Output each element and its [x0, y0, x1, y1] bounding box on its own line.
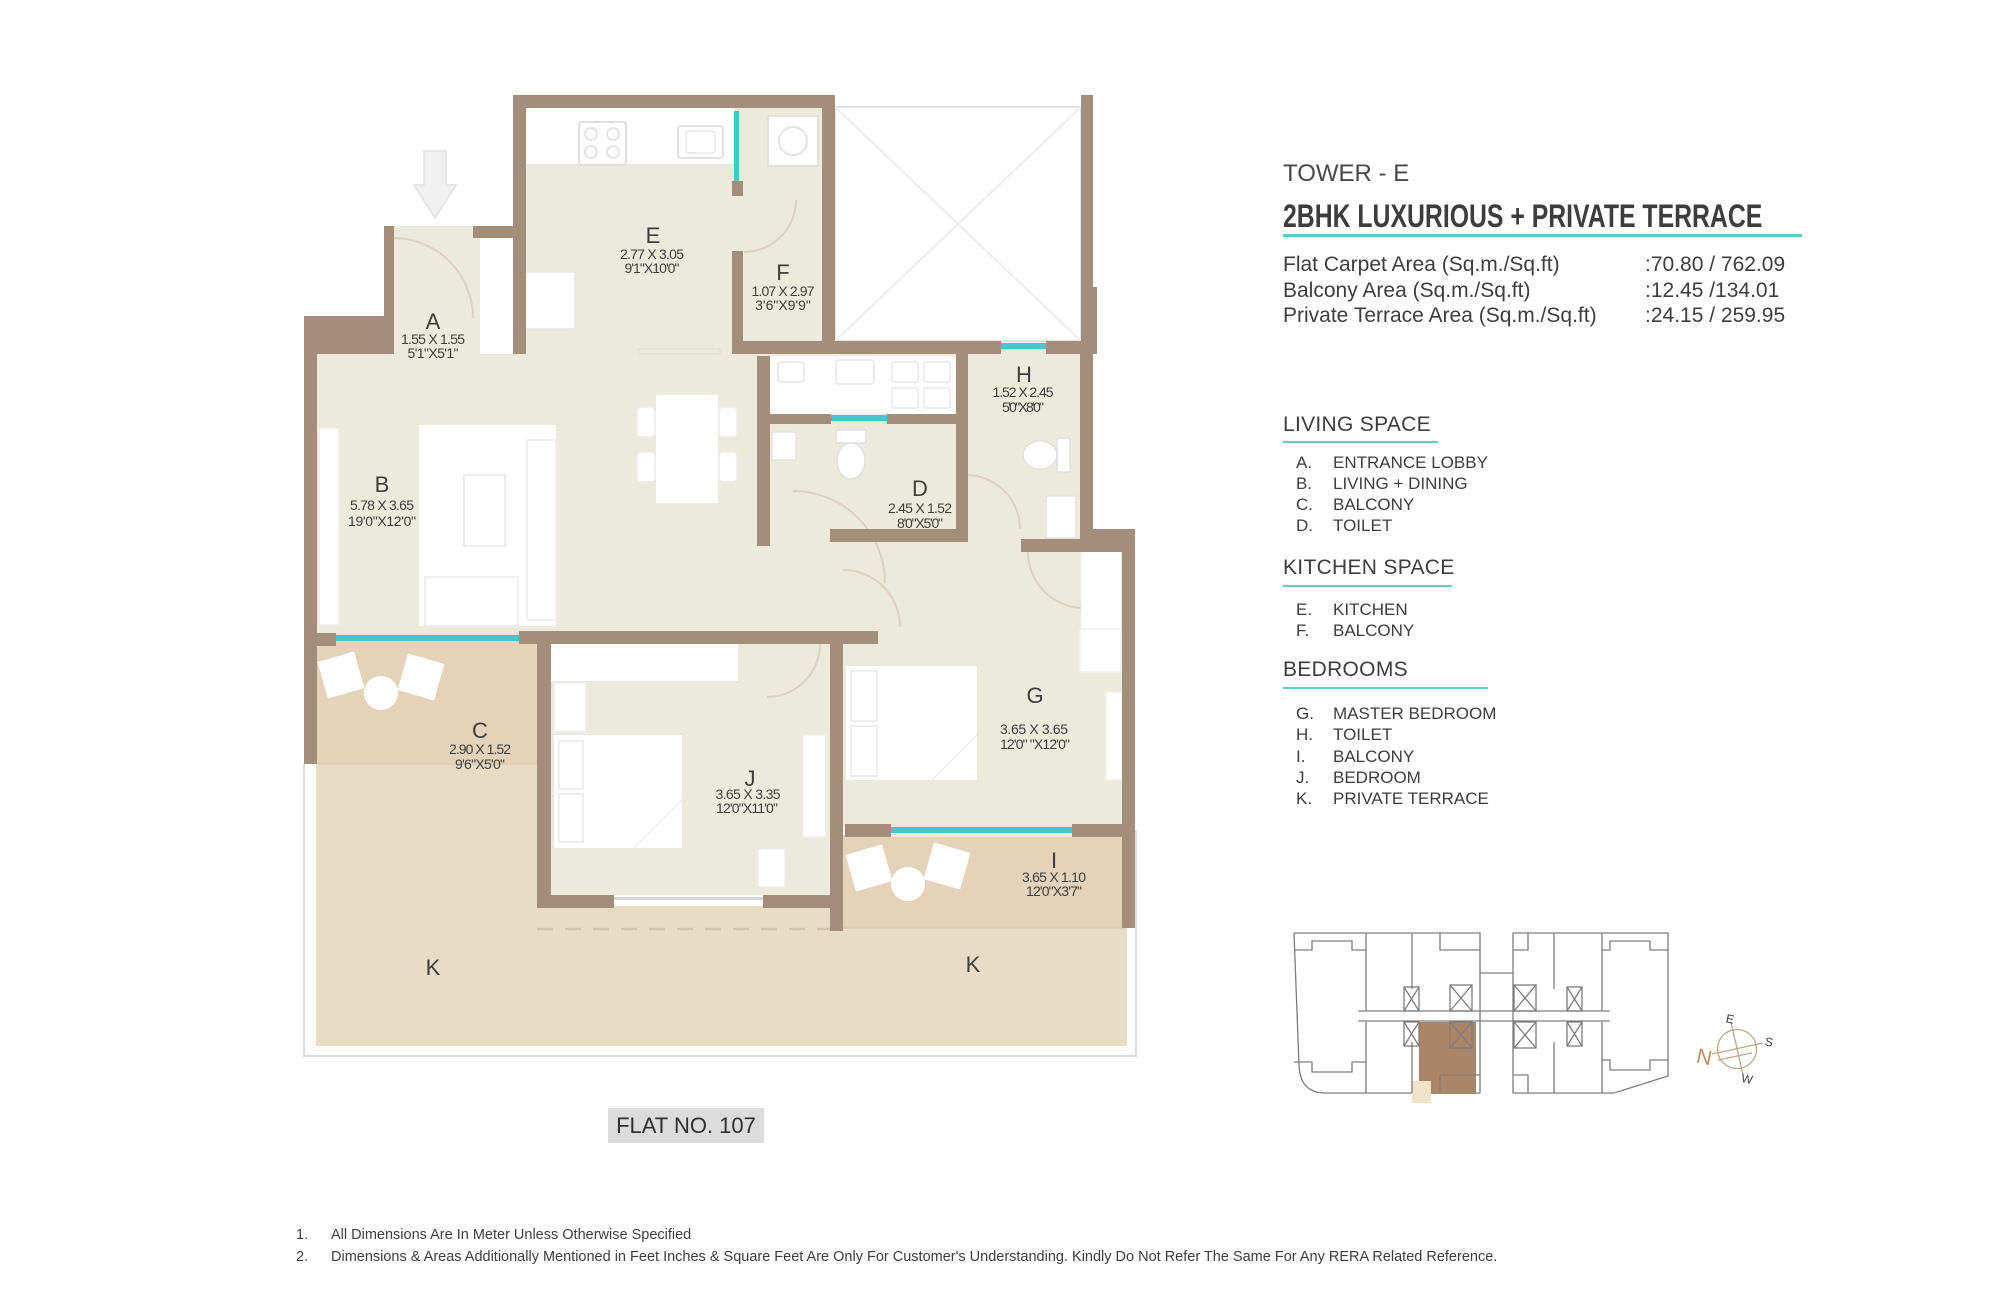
svg-text:E: E	[1725, 1011, 1736, 1026]
svg-text:D: D	[912, 476, 928, 501]
svg-text:C: C	[472, 718, 488, 743]
svg-text:K: K	[966, 952, 981, 977]
svg-text:2.90 X 1.52: 2.90 X 1.52	[449, 741, 511, 757]
svg-text:12'0" "X12'0": 12'0" "X12'0"	[1000, 736, 1070, 752]
svg-text:5'0"X8'0": 5'0"X8'0"	[1002, 399, 1044, 415]
svg-text:1.52 X 2.45: 1.52 X 2.45	[993, 384, 1054, 400]
svg-text:5.78 X 3.65: 5.78 X 3.65	[350, 497, 414, 513]
svg-text:F: F	[776, 260, 789, 285]
svg-text:W: W	[1740, 1071, 1755, 1087]
svg-text:12'0"X11'0": 12'0"X11'0"	[716, 800, 778, 816]
svg-text:8'0"X5'0": 8'0"X5'0"	[897, 515, 943, 531]
svg-text:19'0"X12'0": 19'0"X12'0"	[348, 513, 416, 529]
svg-text:5'1"X5'1": 5'1"X5'1"	[408, 345, 459, 361]
svg-text:2.45 X 1.52: 2.45 X 1.52	[888, 500, 952, 516]
svg-text:G: G	[1026, 683, 1043, 708]
svg-text:B: B	[375, 472, 390, 497]
svg-text:K: K	[426, 955, 441, 980]
svg-text:9'6"X5'0": 9'6"X5'0"	[455, 756, 505, 772]
svg-text:3.65 X 3.65: 3.65 X 3.65	[1000, 721, 1068, 737]
svg-text:N: N	[1694, 1045, 1714, 1071]
svg-text:9'1"X10'0": 9'1"X10'0"	[625, 260, 680, 276]
svg-text:3'6"X9'9": 3'6"X9'9"	[755, 297, 811, 313]
svg-text:E: E	[646, 223, 661, 248]
svg-text:12'0"X3'7": 12'0"X3'7"	[1026, 883, 1082, 899]
svg-text:S: S	[1764, 1034, 1775, 1049]
